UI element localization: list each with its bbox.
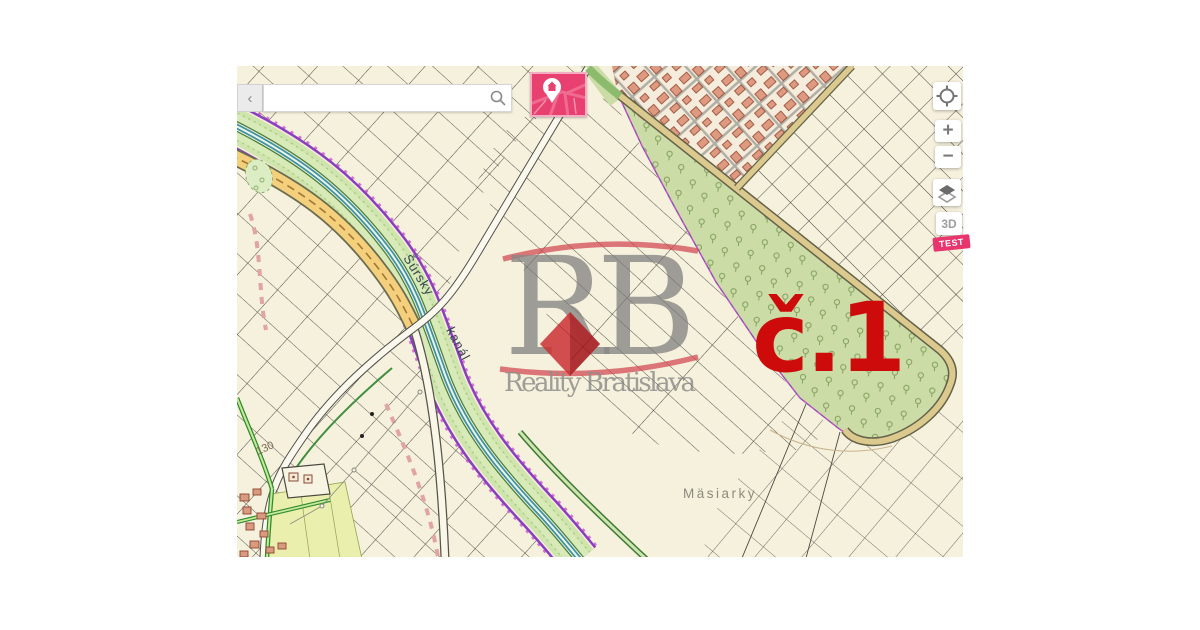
brand-map-tile[interactable] [530, 72, 587, 117]
locate-button[interactable] [933, 82, 961, 110]
locate-icon [935, 84, 959, 108]
back-button[interactable]: ‹ [237, 84, 263, 112]
zoom-out-button[interactable]: − [935, 146, 961, 168]
view-3d-button[interactable]: 3D [936, 212, 962, 235]
parcel-annotation: č.1 [752, 290, 903, 386]
layers-button[interactable] [933, 179, 961, 206]
search-icon[interactable] [485, 85, 511, 111]
area-label: Mäsiarky [683, 486, 757, 501]
screenshot-root: Šúrsky kanál Mäsiarky 130 RB Reality Bra… [0, 0, 1200, 630]
test-badge[interactable]: TEST [932, 234, 970, 252]
search-bar [263, 84, 512, 112]
layers-icon [936, 182, 958, 204]
back-chevron-icon: ‹ [248, 90, 253, 107]
zoom-in-button[interactable]: + [935, 120, 961, 142]
search-input[interactable] [271, 86, 485, 110]
